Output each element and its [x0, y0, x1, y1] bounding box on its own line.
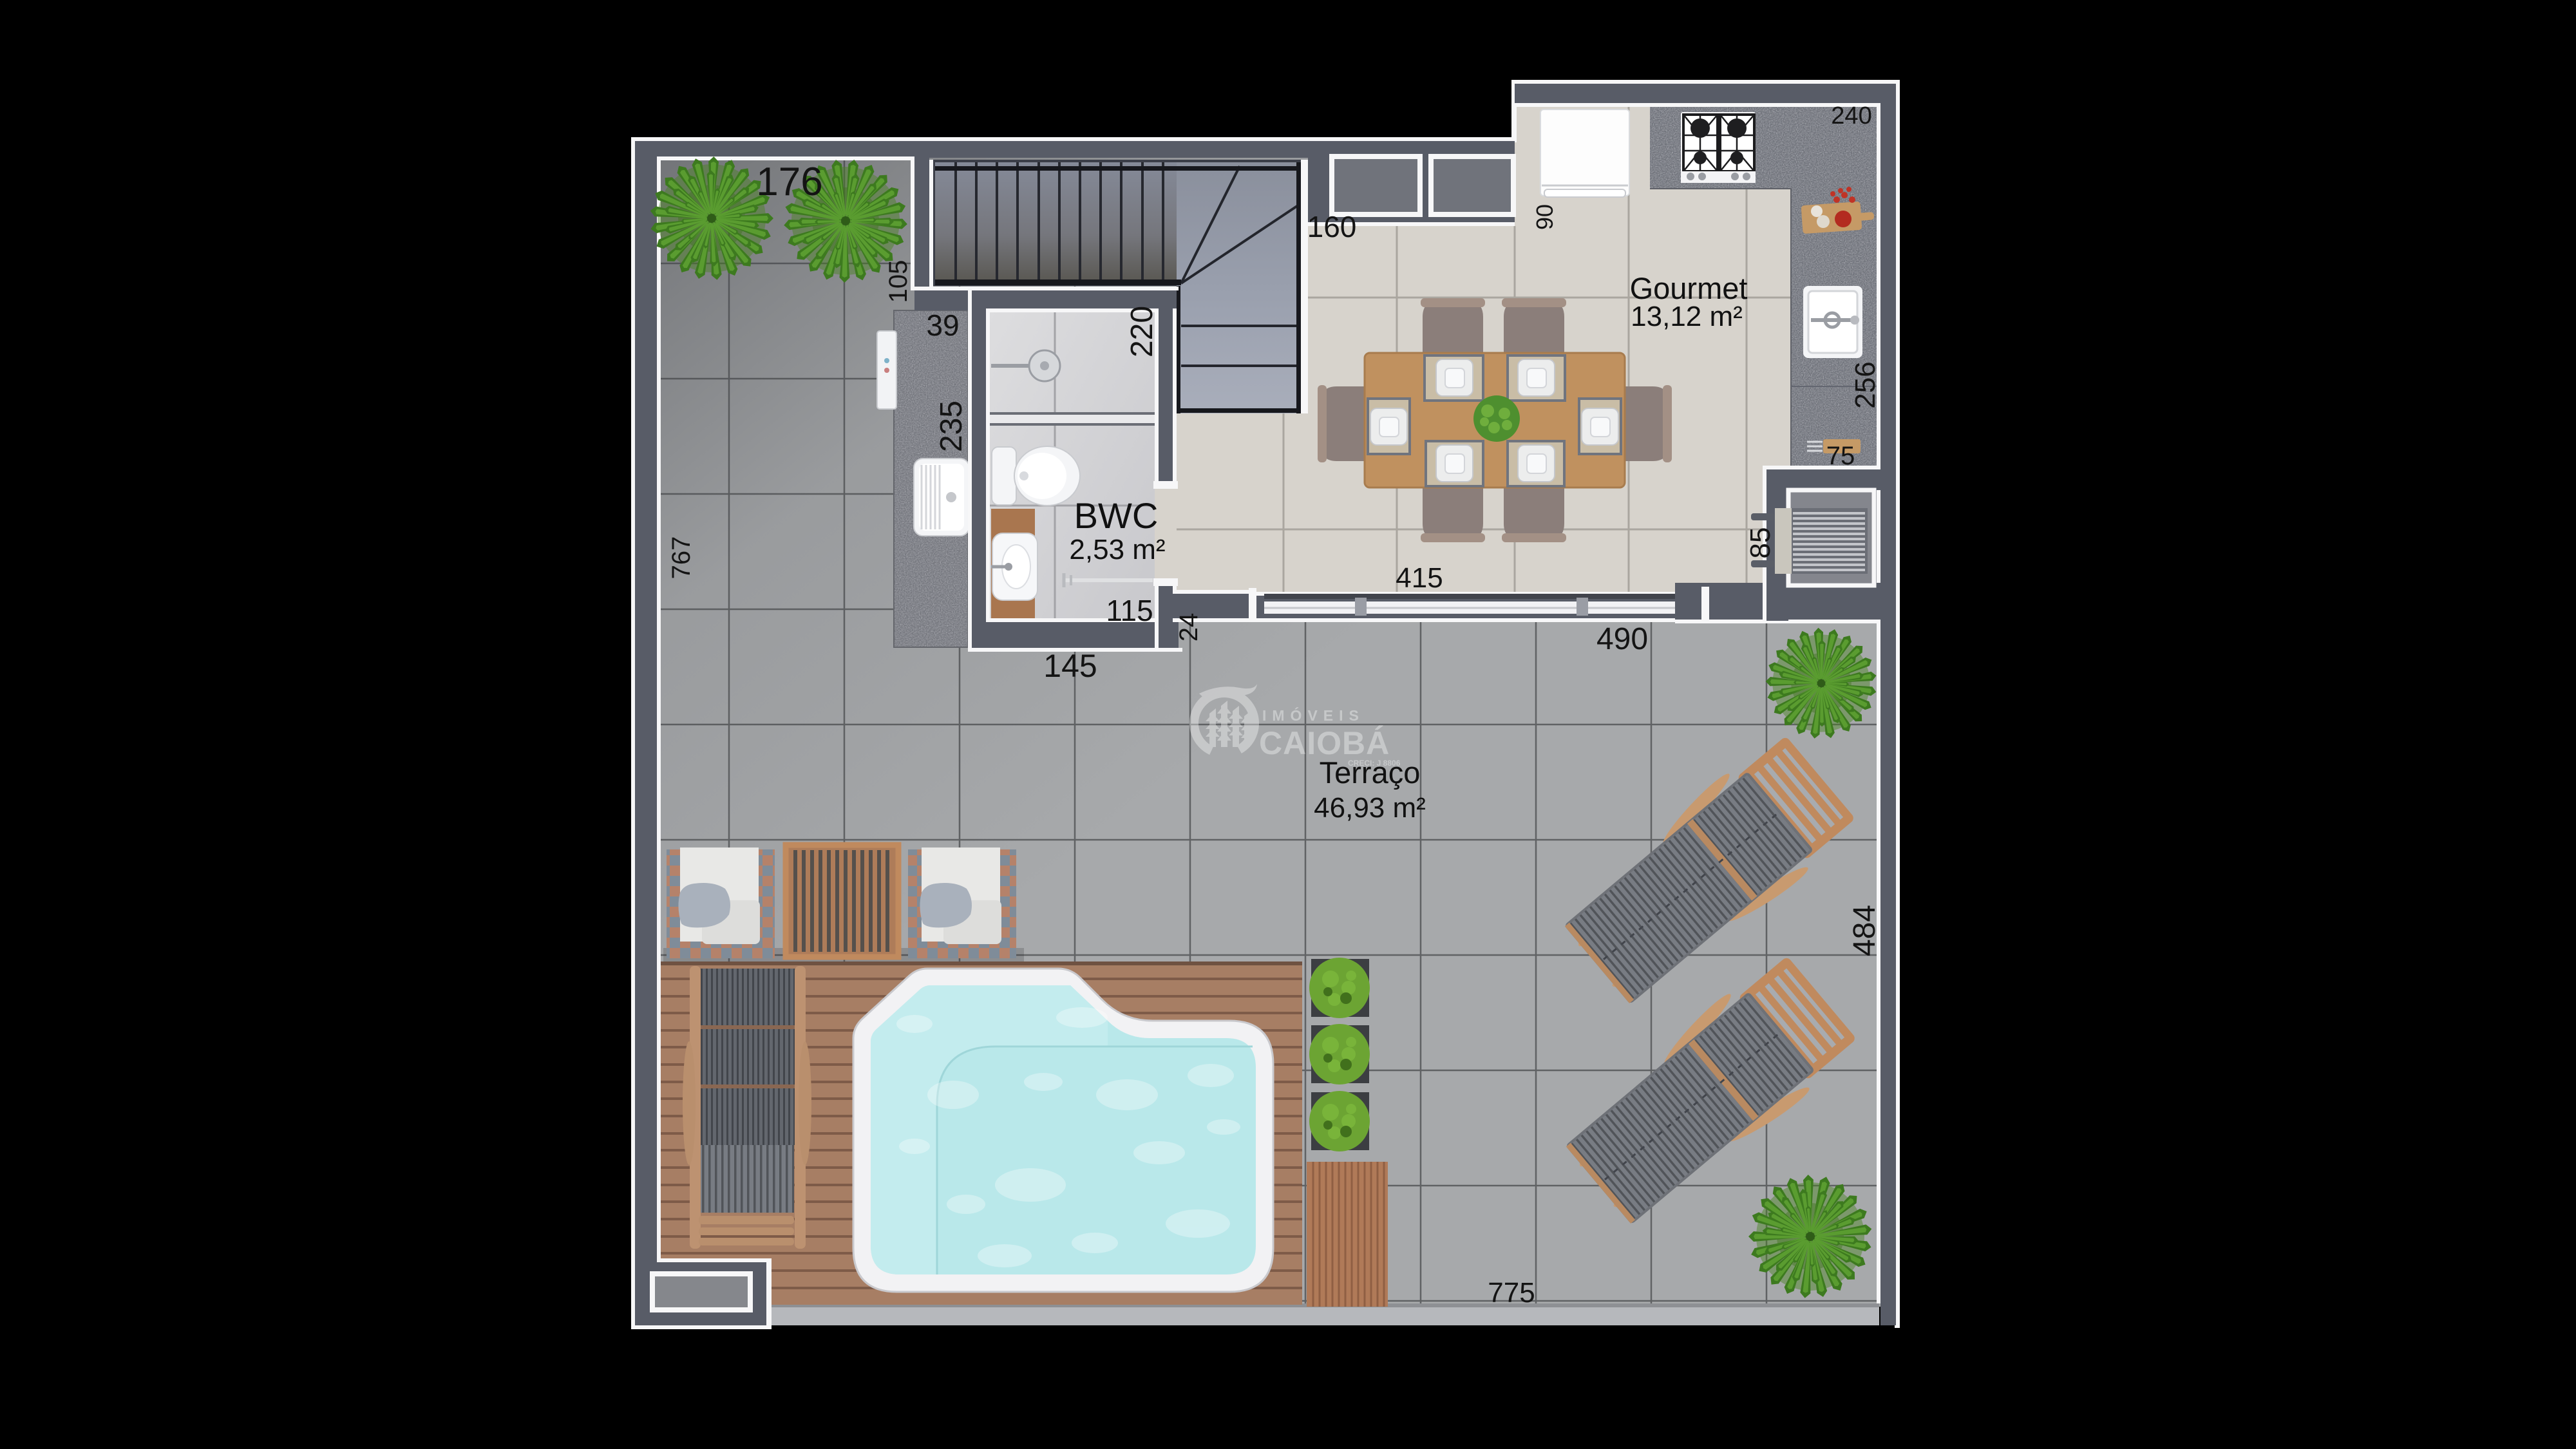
svg-text:85: 85: [1745, 527, 1776, 559]
svg-text:90: 90: [1531, 204, 1558, 230]
svg-text:145: 145: [1043, 648, 1097, 684]
svg-text:24: 24: [1175, 613, 1203, 642]
svg-text:75: 75: [1826, 442, 1855, 470]
svg-text:13,12 m²: 13,12 m²: [1631, 301, 1743, 332]
svg-text:176: 176: [756, 160, 822, 204]
svg-text:46,93 m²: 46,93 m²: [1314, 792, 1426, 824]
svg-text:235: 235: [934, 401, 969, 452]
svg-text:2,53 m²: 2,53 m²: [1069, 534, 1165, 565]
svg-text:484: 484: [1848, 905, 1882, 956]
svg-text:115: 115: [1106, 594, 1153, 627]
svg-text:39: 39: [926, 308, 959, 342]
svg-text:105: 105: [884, 260, 913, 303]
svg-text:160: 160: [1307, 210, 1357, 243]
svg-text:256: 256: [1850, 361, 1881, 408]
svg-text:767: 767: [667, 536, 696, 580]
svg-text:220: 220: [1125, 306, 1159, 357]
svg-text:240: 240: [1831, 102, 1871, 129]
svg-text:BWC: BWC: [1074, 495, 1159, 536]
svg-text:IMÓVEIS: IMÓVEIS: [1262, 706, 1365, 724]
svg-text:775: 775: [1488, 1277, 1535, 1309]
svg-text:Terraço: Terraço: [1320, 755, 1421, 790]
svg-text:415: 415: [1396, 562, 1443, 594]
svg-text:490: 490: [1596, 622, 1648, 656]
